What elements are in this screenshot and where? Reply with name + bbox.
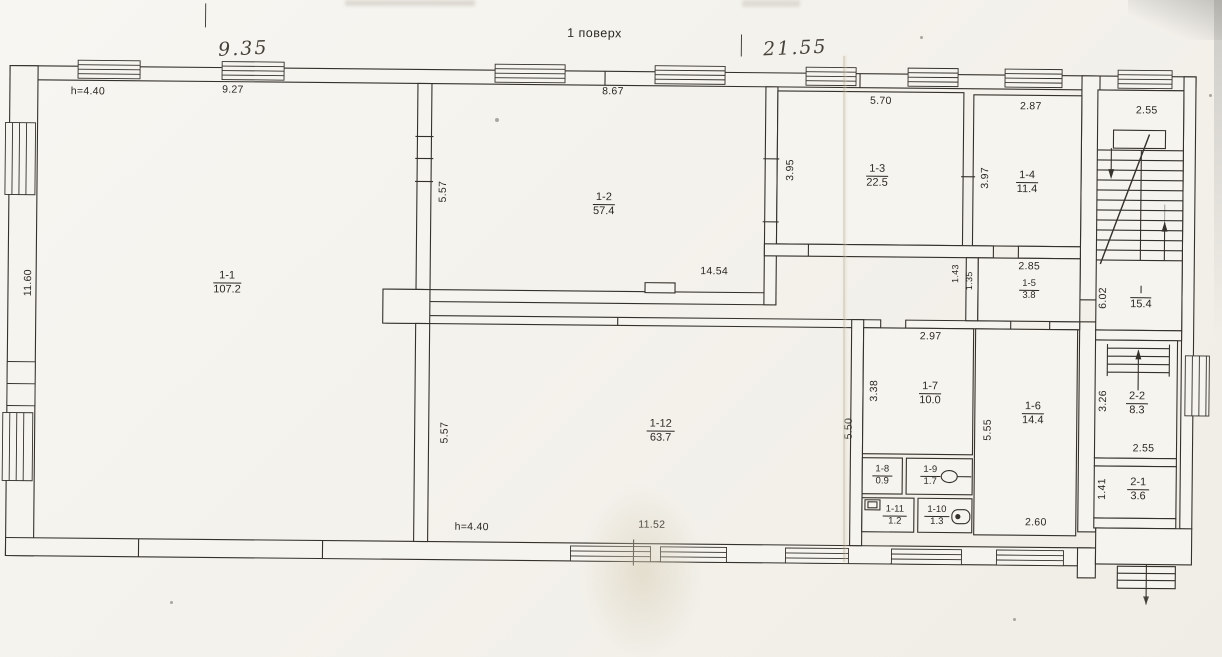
left-wall-vent [7, 362, 35, 406]
wall-1-1-lower [414, 323, 430, 541]
dim-2-60: 2.60 [1025, 516, 1047, 528]
dim-5-70: 5.70 [870, 95, 892, 107]
room-label-1-5: 1-53.8 [1019, 279, 1039, 302]
window-top-5 [806, 67, 856, 85]
entrance-porch-outline [1095, 528, 1191, 565]
dim-5-55: 5.55 [982, 419, 994, 441]
room-label-1-9: 1-91.7 [920, 465, 940, 488]
window-top-6 [908, 68, 958, 86]
room-label-1-11: 1-111.2 [883, 504, 908, 527]
dim-2-87: 2.87 [1020, 100, 1042, 112]
dim-5-57-lower: 5.57 [439, 422, 451, 444]
handwritten-dim-right: 21.55 [763, 36, 828, 61]
dim-5-50: 5.50 [843, 418, 855, 440]
dim-1-41: 1.41 [1096, 478, 1108, 500]
dim-3-26: 3.26 [1097, 390, 1109, 412]
dim-8-67: 8.67 [602, 85, 624, 97]
corridor-top-wall [386, 289, 776, 305]
room-label-1-6: 1-614.4 [1022, 400, 1044, 426]
room-label-1-10: 1-101.3 [924, 505, 949, 528]
window-bottom-5 [996, 550, 1063, 566]
wall-1-1-upper [416, 83, 432, 289]
dim-3-38: 3.38 [868, 380, 880, 402]
window-top-2 [222, 62, 284, 81]
exterior-steps [1117, 564, 1175, 605]
dim-2-55-top: 2.55 [1136, 104, 1158, 116]
corridor-bottom-wall-a [386, 315, 881, 328]
annex-wall-1 [1096, 330, 1182, 341]
east-corridor-wall-b [1018, 246, 1080, 259]
annex-wall-2 [1094, 458, 1176, 467]
dim-3-97: 3.97 [979, 167, 991, 189]
dim-height-top: h=4.40 [71, 85, 105, 97]
partition-walls [381, 83, 1082, 548]
room-label-stairwell: I15.4 [1130, 284, 1152, 310]
east-corridor-wall-a [764, 244, 993, 258]
main-annex-wall-foot [1077, 548, 1095, 578]
handwritten-dim-left: 9.35 [218, 37, 269, 61]
dim-6-02: 6.02 [1097, 287, 1109, 309]
floor-plan-scan: 1 поверх 9.35 21.55 h=4.40 9.27 8.67 5.7… [0, 0, 1222, 657]
room-label-1-7: 1-710.0 [919, 380, 941, 406]
room-label-1-12: 1-1263.7 [647, 418, 675, 445]
window-top-4 [655, 66, 725, 85]
window-left-1 [5, 122, 36, 194]
steps-arrow-head [1143, 596, 1149, 604]
dim-2-85: 2.85 [1018, 260, 1040, 272]
corridor-wall-notch [645, 283, 675, 293]
room-label-1-3: 1-322.5 [866, 163, 888, 189]
annex-wall-3 [1094, 518, 1176, 529]
dim-5-57-upper: 5.57 [437, 181, 449, 203]
dim-11-52: 11.52 [638, 519, 665, 531]
dim-2-97: 2.97 [920, 330, 942, 342]
drawing-tilt-wrapper: 1 поверх 9.35 21.55 h=4.40 9.27 8.67 5.7… [0, 0, 1222, 657]
dim-14-54: 14.54 [700, 265, 728, 277]
window-bottom-3 [785, 548, 848, 564]
dim-9-27: 9.27 [222, 84, 244, 96]
room-label-1-4: 1-411.4 [1016, 169, 1038, 195]
window-bottom-4 [891, 549, 961, 565]
floor-plan-linework [0, 0, 1222, 657]
dim-1-43: 1.43 [950, 264, 960, 283]
window-top-7 [1005, 69, 1062, 88]
window-left-2 [2, 412, 33, 480]
window-bottom-2 [660, 547, 726, 563]
room-label-2-2: 2-28.3 [1126, 390, 1148, 416]
dim-11-60: 11.60 [22, 269, 34, 296]
window-top-8 [1118, 70, 1172, 89]
handwritten-dim-ticks [205, 3, 741, 56]
window-top-3 [495, 64, 565, 83]
room-label-2-1: 2-13.6 [1127, 476, 1149, 502]
room-label-1-8: 1-80.9 [872, 464, 892, 487]
corridor-niche [383, 289, 430, 323]
corridor-bottom-wall-c [1050, 322, 1080, 330]
drawing-title: 1 поверх [567, 26, 622, 41]
dim-3-95: 3.95 [784, 159, 796, 181]
window-bottom-1 [570, 546, 650, 562]
dim-2-55-mid: 2.55 [1133, 442, 1155, 454]
room-label-1-2: 1-257.4 [593, 191, 615, 217]
window-top-1 [78, 60, 140, 79]
dim-1-35: 1.35 [964, 271, 974, 290]
room-label-1-1: 1-1107.2 [213, 269, 241, 296]
dim-height-bottom: h=4.40 [455, 521, 489, 533]
wall-1-2-east [764, 87, 778, 305]
window-right-annex [1185, 356, 1210, 416]
